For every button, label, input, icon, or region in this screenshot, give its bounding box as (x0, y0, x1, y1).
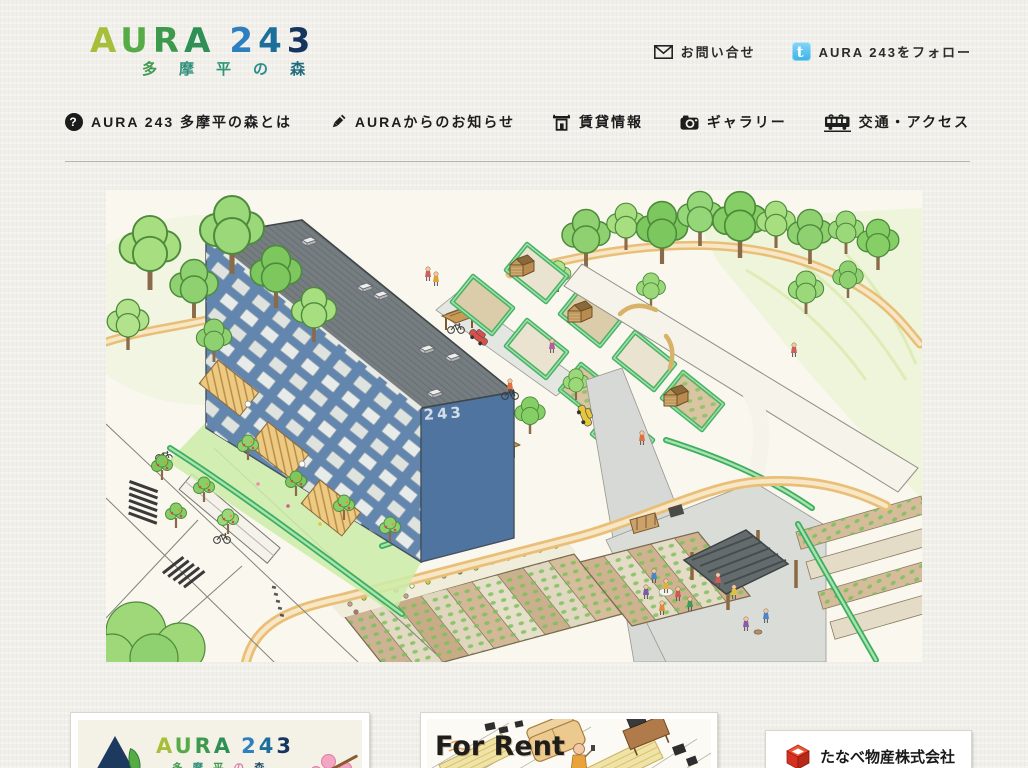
hero-svg: 243 (106, 190, 922, 662)
follow-label: AURA 243をフォロー (819, 42, 972, 61)
logo-letter: R (195, 734, 214, 758)
contact-label: お問い合せ (681, 42, 756, 61)
site-logo[interactable]: AURA243 多摩平の森 (90, 24, 327, 77)
nav-label: 交通・アクセス (859, 112, 970, 132)
logo-subtitle-char: 多 (172, 762, 193, 768)
logo-letter: A (214, 734, 233, 758)
logo-subtitle: 多摩平の森 (142, 62, 327, 77)
banner-for-rent-art: For Rent (427, 719, 711, 768)
tanabe-cube-icon (782, 741, 812, 768)
mail-icon (654, 45, 673, 59)
logo-letter: R (153, 21, 184, 61)
banner-aura-wordmark: AURA243 (156, 734, 294, 758)
building-number: 243 (423, 403, 464, 424)
logo-letter: U (175, 734, 195, 758)
logo-letter: A (184, 21, 215, 61)
logo-letter: 3 (287, 21, 316, 61)
question-icon: ? (65, 113, 83, 131)
logo-subtitle-char: の (253, 61, 290, 78)
logo-subtitle-char: 森 (290, 61, 327, 78)
nav-label: 賃貸情報 (579, 112, 643, 132)
twitter-follow-link[interactable]: t AURA 243をフォロー (792, 42, 972, 61)
pencil-icon (329, 113, 347, 131)
train-icon (824, 113, 851, 132)
logo-letter: 4 (259, 734, 277, 758)
hero-illustration: 243 (106, 190, 922, 662)
for-rent-label: For Rent (435, 731, 565, 762)
nav-item-rent[interactable]: 賃貸情報 (552, 112, 643, 132)
logo-subtitle-char: 摩 (179, 61, 216, 78)
nav-label: ギャラリー (707, 112, 787, 132)
logo-letter: 2 (229, 21, 258, 61)
logo-letter: U (120, 21, 153, 61)
banner-tanabe-link[interactable]: たなべ物産株式会社 (765, 730, 972, 768)
banner-aura-subtitle: 多摩平の森 (172, 760, 275, 768)
header-links: お問い合せ t AURA 243をフォロー (654, 42, 972, 61)
nav-item-news[interactable]: AURAからのお知らせ (329, 112, 515, 132)
logo-letter: A (90, 21, 120, 61)
logo-subtitle-char: 平 (213, 762, 234, 768)
logo-letter: 2 (241, 734, 259, 758)
tanabe-label: たなべ物産株式会社 (820, 746, 955, 767)
nav-label: AURA 243 多摩平の森とは (91, 112, 292, 132)
nav-label: AURAからのお知らせ (355, 112, 515, 132)
logo-subtitle-char: 森 (254, 762, 275, 768)
logo-subtitle-char: 摩 (193, 762, 214, 768)
twitter-icon: t (792, 42, 811, 61)
logo-letter: 4 (258, 21, 287, 61)
banner-for-rent-link[interactable]: For Rent (420, 712, 718, 768)
logo-letter: 3 (276, 734, 294, 758)
banner-aura-link[interactable]: AURA243 多摩平の森 (70, 712, 370, 768)
contact-link[interactable]: お問い合せ (654, 42, 756, 61)
logo-subtitle-char: 平 (216, 61, 253, 78)
logo-subtitle-char: の (234, 762, 255, 768)
main-nav: ? AURA 243 多摩平の森とは AURAからのお知らせ 賃貸情報 (65, 112, 970, 132)
logo-subtitle-char: 多 (142, 61, 179, 78)
header-divider (65, 161, 970, 162)
nav-item-gallery[interactable]: ギャラリー (680, 112, 787, 132)
page: AURA243 多摩平の森 お問い合せ t AURA 243をフォロー ? AU… (0, 0, 1028, 768)
camera-icon (680, 115, 699, 130)
logo-letter: A (156, 734, 175, 758)
nav-item-about[interactable]: ? AURA 243 多摩平の森とは (65, 112, 292, 132)
banner-aura-art: AURA243 多摩平の森 (78, 720, 362, 768)
nav-item-access[interactable]: 交通・アクセス (824, 112, 970, 132)
building-icon (552, 114, 571, 131)
logo-wordmark: AURA243 (90, 24, 327, 58)
